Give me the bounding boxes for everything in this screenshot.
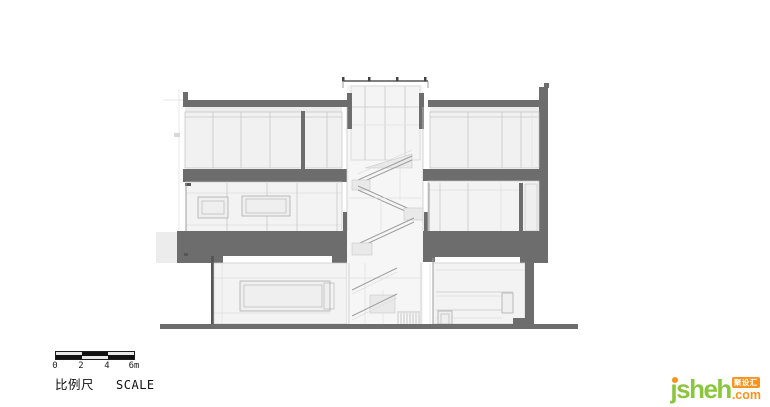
left-2f-floor-slab (183, 169, 347, 182)
left-interior-wall (301, 111, 305, 169)
bed-1f (240, 281, 330, 311)
left-roof-slab (183, 100, 347, 107)
cabinet-1f (502, 293, 513, 313)
left-topfloor-wall (185, 112, 342, 168)
logo-right-column: 聚设汇 .com (732, 377, 761, 401)
scale-tick-6m: 6m (129, 361, 140, 371)
right-wing (423, 83, 549, 325)
left-thick-slab (177, 231, 347, 263)
skylight-glazing (351, 86, 420, 160)
scale-tick-4: 4 (104, 361, 109, 371)
right-topfloor-wall (430, 112, 539, 168)
scale-label-cn: 比例尺 (55, 378, 94, 392)
building-section-drawing (0, 0, 770, 407)
scale-bar-labels: 比例尺SCALE (55, 374, 145, 393)
scale-bar: 0 2 4 6m 比例尺SCALE (55, 351, 145, 393)
ground-line (160, 324, 578, 329)
bed-2f-left (198, 197, 228, 218)
logo-tld: .com (732, 389, 761, 402)
scale-label-en: SCALE (116, 378, 155, 392)
logo-brand-text: jsheh (670, 376, 730, 402)
skylight-mullion-left (347, 93, 352, 129)
logo-badge: 聚设汇 (732, 377, 760, 388)
left-balcony-block (156, 232, 177, 263)
right-roof-slab (428, 100, 540, 107)
scale-bar-ticks: 0 2 4 6m (55, 360, 133, 371)
right-2f-floor-slab (423, 169, 542, 181)
scale-tick-0: 0 (52, 361, 57, 371)
drawing-canvas: 0 2 4 6m 比例尺SCALE jsheh 聚设汇 .com (0, 0, 770, 407)
right-2f-divider-wall (519, 183, 523, 232)
left-wing (156, 90, 347, 324)
right-parapet-cap (544, 83, 549, 88)
scale-tick-2: 2 (78, 361, 83, 371)
jsheh-logo: jsheh 聚设汇 .com (670, 376, 761, 402)
right-thick-slab (423, 231, 548, 263)
left-1f-wall (211, 256, 214, 324)
scale-bar-graphic (55, 351, 135, 360)
stair-atrium (342, 77, 428, 325)
right-1f-wall (525, 263, 534, 320)
